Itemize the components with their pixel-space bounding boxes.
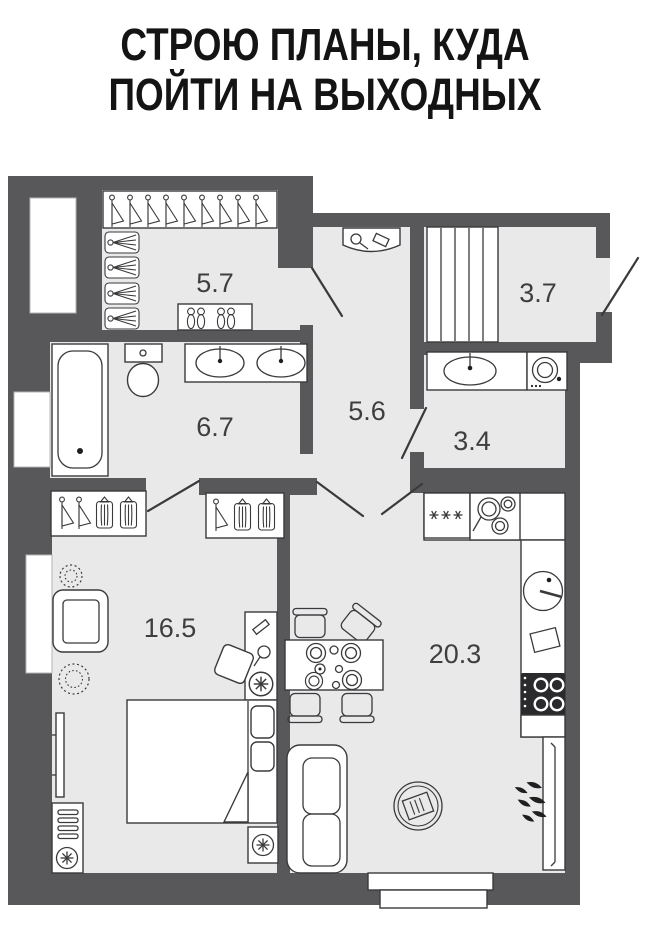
closet-left [51,491,146,536]
washing-machine [527,352,567,390]
floorplan-svg: 5.7 3.7 6.7 5.6 3.4 16.5 20.3 [0,0,650,936]
label-wc-laundry: 3.4 [453,426,491,456]
stove [521,673,565,715]
label-hallway: 5.6 [348,396,386,426]
window-bathroom [14,392,50,467]
meme-floorplan-image: СТРОЮ ПЛАНЫ, КУДА ПОЙТИ НА ВЫХОДНЫХ [0,0,650,936]
pillow [251,706,274,738]
media-console [52,803,83,873]
label-bathroom: 6.7 [196,412,234,442]
window-bedroom [26,555,52,673]
label-walk-in-closet: 5.7 [196,268,234,298]
label-bedroom: 16.5 [144,613,197,643]
hanging-rod [103,191,277,228]
built-in-wardrobe [427,227,498,342]
armchair [53,590,108,652]
pillow [251,742,274,771]
label-entry-hall: 3.7 [519,278,557,308]
bathtub [52,344,108,476]
oven [521,715,565,737]
bed [127,700,277,823]
shoe-box [178,304,252,330]
label-kitchen-living: 20.3 [429,639,482,669]
spotlight-box [248,827,278,863]
cooking-zone [470,493,520,540]
sink-counter [427,352,527,390]
closet-right [206,493,284,538]
dishwasher [424,493,470,538]
sofa [287,745,347,873]
window-closet [30,198,76,313]
balcony-door [368,873,493,908]
room-wc-laundry [427,352,567,390]
console-shelf [343,228,400,252]
double-sink-vanity [185,344,307,382]
